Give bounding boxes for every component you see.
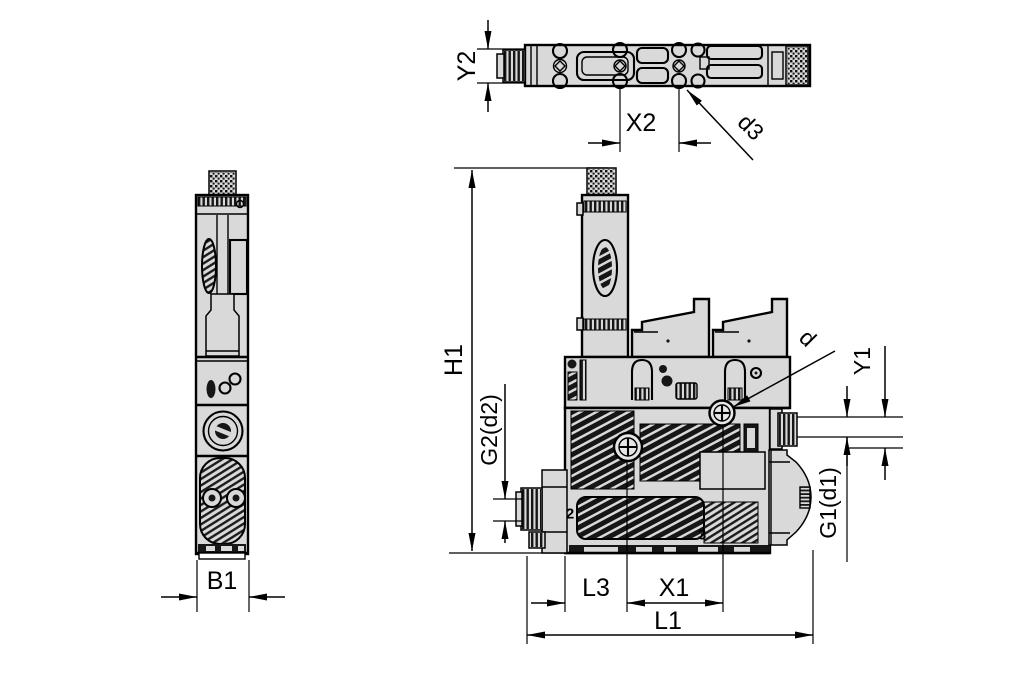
dimension-x2: X2 <box>588 89 711 152</box>
dim-label-x2: X2 <box>626 109 657 137</box>
front-view-end-cap <box>769 450 811 545</box>
dim-label-l3: L3 <box>582 574 610 602</box>
base-strip <box>565 545 770 553</box>
dim-label-y1: Y1 <box>849 347 875 375</box>
side-view-top-connector <box>209 171 236 195</box>
top-view-left-port <box>497 50 525 82</box>
rib-cluster-lower-right <box>704 502 758 543</box>
mounting-screw-1 <box>614 433 642 461</box>
side-view-top-band <box>198 197 246 206</box>
relief-panel <box>700 452 765 489</box>
front-view: H1 <box>440 168 903 644</box>
front-view-tower <box>577 168 628 357</box>
dimension-port-diameter <box>797 386 903 562</box>
front-view-right-port <box>770 409 797 449</box>
front-view-wedge-block-2 <box>713 299 787 357</box>
dimension-y1: Y1 <box>849 346 885 480</box>
dim-label-y2: Y2 <box>453 51 481 82</box>
dimension-b1: B1 <box>161 560 285 612</box>
dim-label-b1: B1 <box>207 567 238 595</box>
dim-label-l1: L1 <box>654 607 682 635</box>
technical-drawing-page: Y2 X2 d3 <box>0 0 1010 673</box>
mounting-screw-2 <box>710 401 735 426</box>
top-view: Y2 X2 d3 <box>453 20 810 160</box>
side-view-window-slot <box>202 239 216 293</box>
dim-label-h1: H1 <box>440 344 468 376</box>
dim-label-g1-d1: G1(d1) <box>815 467 841 539</box>
side-view-base-strip <box>196 544 248 559</box>
tower-thread <box>588 169 615 194</box>
dim-label-g2-d2: G2(d2) <box>476 394 502 466</box>
port-marking-3: 3 <box>698 526 706 543</box>
dimension-l1: L1 <box>527 607 813 635</box>
front-view-wedge-block-1 <box>632 299 709 357</box>
dim-label-x1: X1 <box>659 574 690 602</box>
rib-cluster-lower <box>577 497 704 539</box>
dimension-x1: X1 <box>627 574 723 603</box>
side-view-neck <box>206 294 239 356</box>
end-cap-knurl-nub <box>800 487 810 508</box>
technical-drawing-canvas: Y2 X2 d3 <box>0 0 1010 673</box>
side-view: B1 <box>161 171 285 612</box>
dimension-g1-d1: G1(d1) <box>815 467 841 539</box>
front-view-ejector-body: 2 3 <box>565 401 770 554</box>
top-view-knurled-end <box>786 46 808 85</box>
dimension-l3: L3 <box>531 574 610 603</box>
dimension-d3: d3 <box>687 90 769 160</box>
dim-label-d3: d3 <box>733 109 769 145</box>
dim-label-d: d <box>794 324 821 351</box>
front-view-valve-section <box>565 357 790 408</box>
front-view-left-port <box>516 470 567 553</box>
